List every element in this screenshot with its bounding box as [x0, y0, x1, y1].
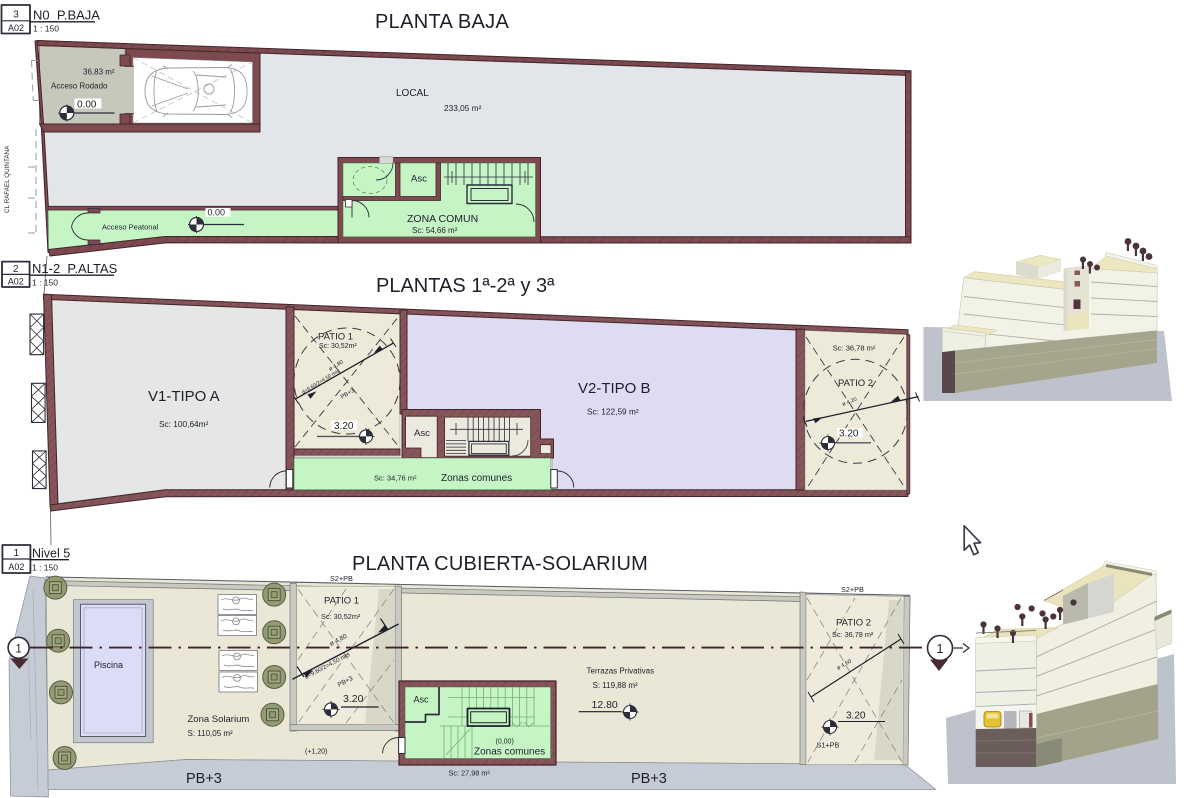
svg-text:S: 119,88 m²: S: 119,88 m² [593, 681, 639, 690]
svg-text:Zonas comunes: Zonas comunes [474, 747, 545, 758]
svg-text:(0,00): (0,00) [496, 739, 514, 746]
svg-text:3.20: 3.20 [839, 429, 859, 440]
svg-text:Nivel 5: Nivel 5 [32, 547, 70, 561]
svg-text:Acceso Peatonal: Acceso Peatonal [102, 223, 159, 232]
svg-text:LOCAL: LOCAL [396, 88, 429, 99]
svg-text:PB+3: PB+3 [631, 771, 667, 787]
svg-text:36,83 m²: 36,83 m² [83, 68, 115, 77]
svg-text:Acceso Rodado: Acceso Rodado [51, 82, 108, 91]
svg-text:Asc: Asc [411, 174, 427, 185]
svg-text:Terrazas Privativas: Terrazas Privativas [587, 667, 655, 676]
svg-text:Sc: 122,59 m²: Sc: 122,59 m² [587, 407, 639, 417]
svg-text:233,05 m²: 233,05 m² [444, 103, 482, 113]
svg-text:1: 1 [937, 642, 944, 656]
svg-text:CL RAFAEL QUINTANA: CL RAFAEL QUINTANA [4, 145, 11, 213]
svg-text:Sc: 100,64m²: Sc: 100,64m² [159, 419, 209, 429]
svg-text:1 : 150: 1 : 150 [32, 278, 58, 288]
svg-text:0.00: 0.00 [208, 208, 226, 218]
svg-text:Sc: 34,76 m²: Sc: 34,76 m² [374, 474, 417, 483]
svg-text:ZONA COMUN: ZONA COMUN [407, 213, 478, 225]
svg-text:3.20: 3.20 [846, 711, 866, 722]
svg-text:(+1,20): (+1,20) [305, 749, 327, 756]
svg-text:PLANTAS 1ª-2ª y 3ª: PLANTAS 1ª-2ª y 3ª [376, 275, 555, 297]
svg-text:Sc: 27,98 m²: Sc: 27,98 m² [449, 769, 491, 778]
svg-text:1: 1 [14, 548, 20, 559]
svg-text:Sc: 54,66 m²: Sc: 54,66 m² [412, 226, 458, 235]
svg-text:1 : 150: 1 : 150 [32, 563, 58, 573]
svg-text:2: 2 [13, 264, 19, 275]
svg-text:Piscina: Piscina [94, 660, 123, 670]
svg-text:Sc: 30,52m²: Sc: 30,52m² [319, 343, 357, 350]
svg-text:Asc: Asc [414, 695, 430, 705]
svg-text:PB+3: PB+3 [186, 771, 222, 787]
svg-text:1: 1 [15, 643, 21, 655]
svg-text:V1-TIPO A: V1-TIPO A [148, 388, 220, 405]
svg-text:A02: A02 [8, 562, 24, 572]
svg-text:12.80: 12.80 [592, 699, 618, 711]
svg-text:3.20: 3.20 [334, 421, 354, 432]
svg-text:A02: A02 [8, 23, 24, 33]
svg-text:1 : 150: 1 : 150 [33, 24, 59, 34]
svg-text:S2+PB: S2+PB [841, 585, 864, 594]
svg-text:3.20: 3.20 [343, 693, 364, 705]
svg-text:PATIO 1: PATIO 1 [318, 332, 353, 343]
svg-text:Sc: 36,78 m²: Sc: 36,78 m² [832, 630, 874, 639]
svg-text:N1-2_P.ALTAS: N1-2_P.ALTAS [32, 261, 118, 276]
svg-text:3: 3 [13, 10, 19, 21]
svg-text:A02: A02 [8, 277, 24, 287]
svg-text:S2+PB: S2+PB [330, 574, 353, 583]
svg-text:PATIO 1: PATIO 1 [324, 596, 359, 607]
svg-text:S: 110,05 m²: S: 110,05 m² [188, 729, 234, 738]
svg-text:PLANTA BAJA: PLANTA BAJA [375, 11, 509, 33]
svg-text:0.00: 0.00 [77, 100, 97, 111]
svg-text:Sc: 36,78 m²: Sc: 36,78 m² [833, 344, 876, 353]
svg-text:Sc: 30,52m²: Sc: 30,52m² [321, 612, 361, 621]
svg-text:PATIO 2: PATIO 2 [836, 618, 871, 629]
svg-text:PATIO 2: PATIO 2 [838, 378, 873, 389]
svg-text:Zonas comunes: Zonas comunes [441, 473, 512, 484]
svg-text:Zona Solarium: Zona Solarium [188, 714, 250, 725]
svg-text:V2-TIPO B: V2-TIPO B [578, 380, 651, 397]
svg-text:Asc: Asc [414, 428, 430, 439]
svg-text:PLANTA CUBIERTA-SOLARIUM: PLANTA CUBIERTA-SOLARIUM [352, 553, 648, 575]
svg-text:S1+PB: S1+PB [817, 741, 840, 750]
svg-text:N0_P.BAJA: N0_P.BAJA [33, 8, 100, 23]
